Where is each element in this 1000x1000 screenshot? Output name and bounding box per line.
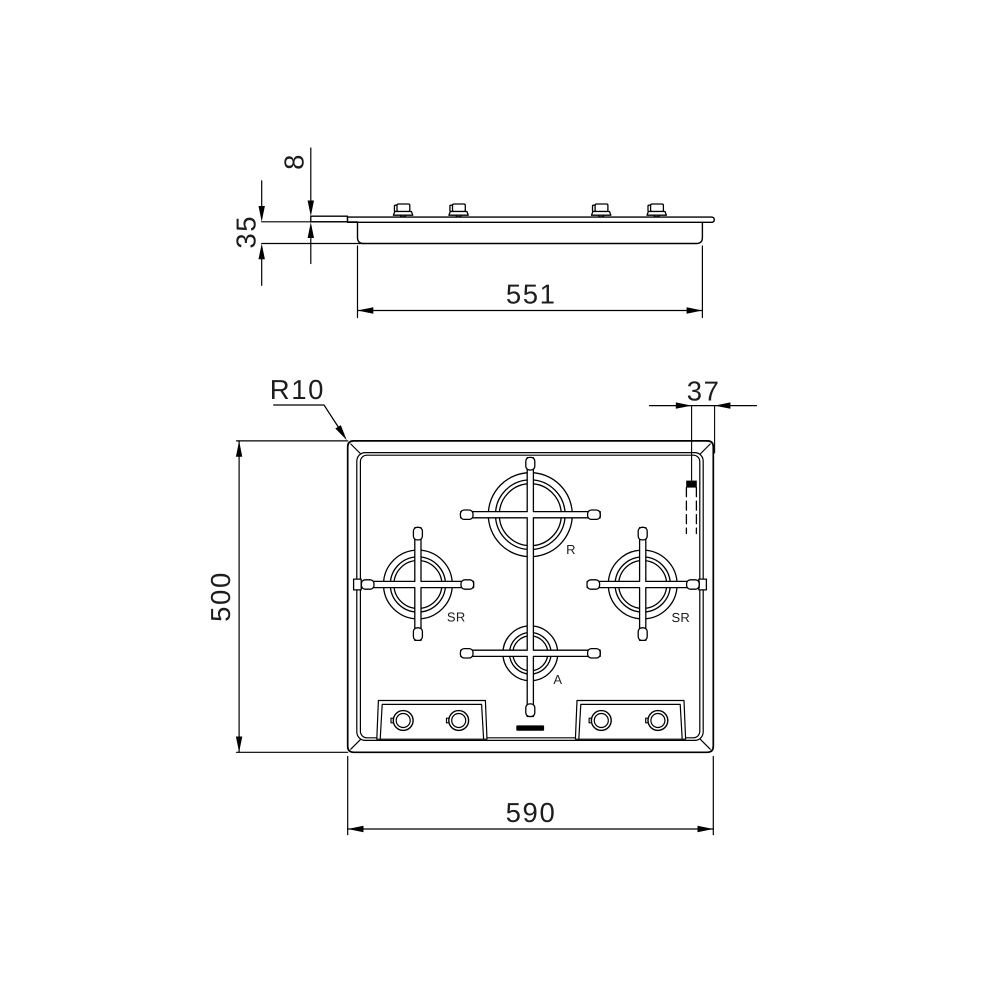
svg-text:551: 551 [506,278,557,309]
svg-text:590: 590 [506,797,557,828]
svg-text:SR: SR [671,610,690,625]
svg-text:R: R [566,542,576,557]
svg-text:8: 8 [279,153,310,170]
svg-text:500: 500 [205,571,236,622]
svg-text:37: 37 [687,375,721,406]
svg-text:35: 35 [231,215,262,249]
svg-text:A: A [553,672,562,687]
svg-text:SR: SR [447,610,466,625]
svg-text:R10: R10 [270,374,325,405]
